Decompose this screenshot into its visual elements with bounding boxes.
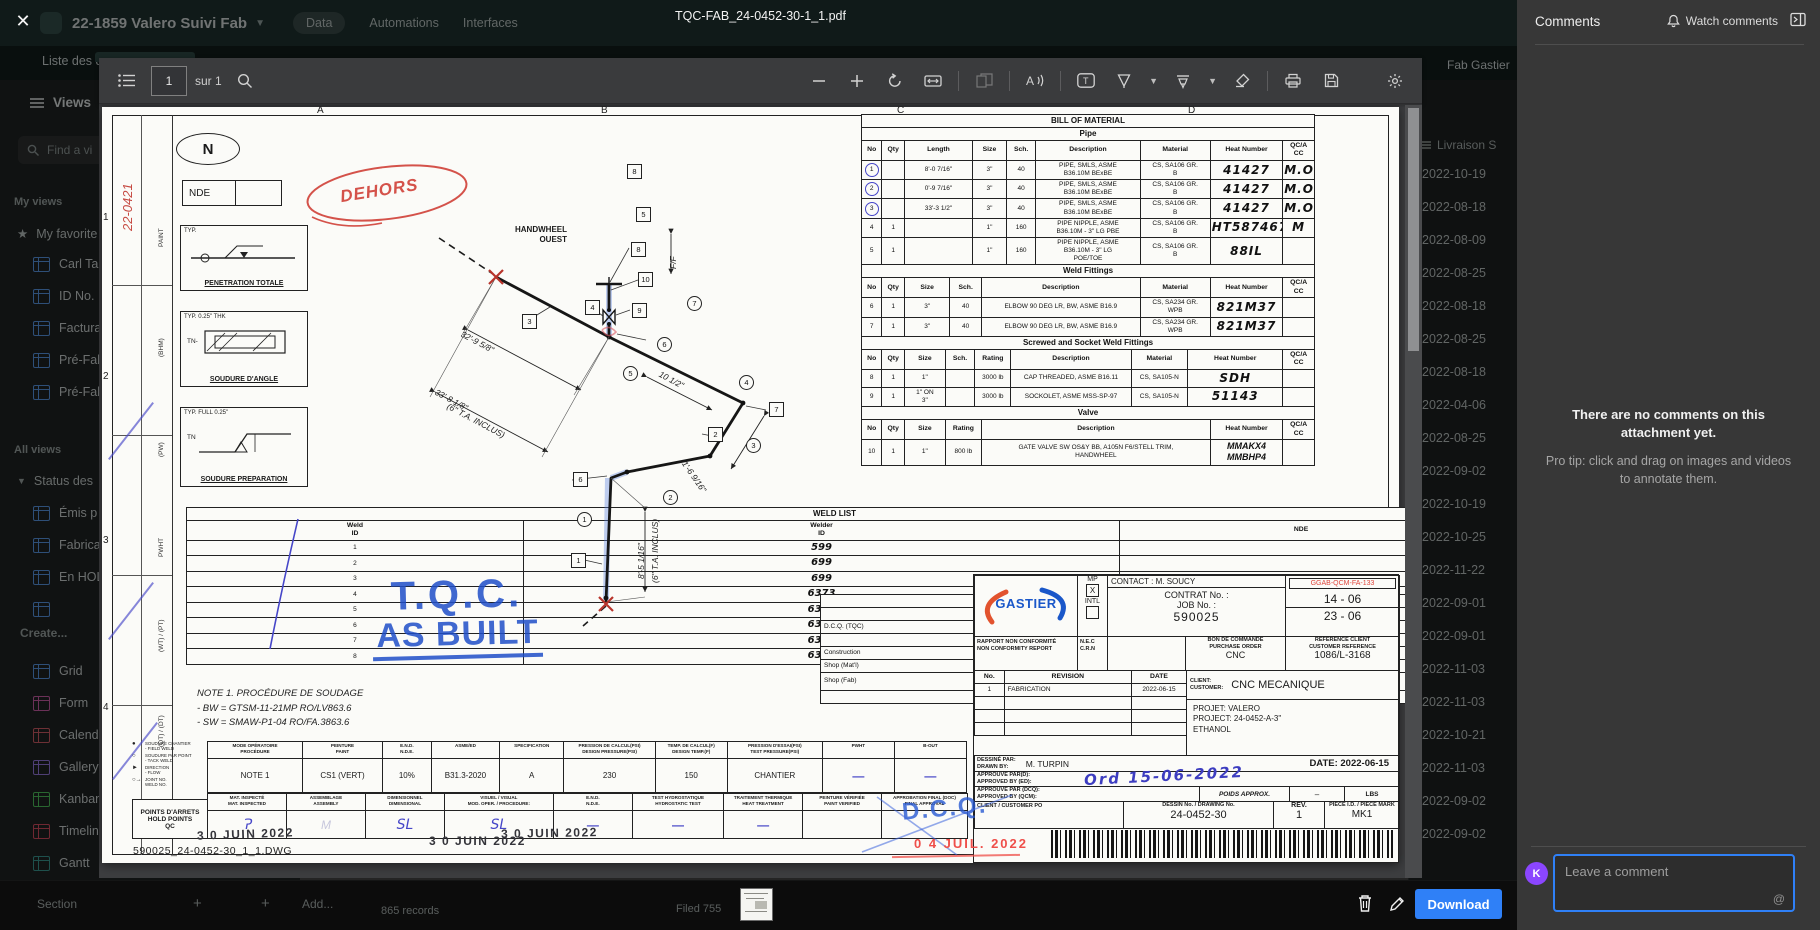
bell-icon: [1667, 14, 1680, 28]
date-cell[interactable]: 2022-04-06: [1409, 389, 1519, 422]
sidebar-view-item-partial[interactable]: [0, 593, 50, 625]
views-label: Views: [53, 95, 91, 110]
view-item-label: Fabrica: [59, 538, 101, 552]
star-icon: ★: [17, 226, 28, 241]
settings-gear-icon[interactable]: [1382, 68, 1408, 94]
screen: 22-1859 Valero Suivi Fab ▼ Data Automati…: [0, 0, 1820, 930]
grid-view-icon: [33, 289, 50, 304]
mp-checkbox: X: [1086, 584, 1099, 597]
grid-view-icon: [33, 321, 50, 336]
view-item-label: ID No.: [59, 289, 94, 303]
view-type-icon: [33, 696, 50, 711]
date-cell[interactable]: 2022-09-02: [1409, 455, 1519, 488]
read-aloud-icon[interactable]: A: [1022, 68, 1048, 94]
search-icon: [27, 144, 39, 156]
create-item-label: Gantt: [59, 856, 90, 870]
title-block: GASTIER MP X INTL CONTACT : M. SOUCY CON…: [973, 574, 1399, 863]
create-item-label: Kanban: [59, 792, 102, 806]
all-views-label: All views: [14, 444, 61, 456]
view-type-icon: [33, 728, 50, 743]
dimension-label: 10 1/2": [657, 369, 685, 390]
add-button[interactable]: Add...: [302, 897, 333, 911]
grid-view-icon: [33, 506, 50, 521]
legend-item: ►DIRECTION - FLOW: [132, 765, 208, 775]
date-cell[interactable]: 2022-10-19: [1409, 488, 1519, 521]
section-label[interactable]: Section: [37, 897, 77, 911]
legend-item: ●SOUDURE CHANTIER - FIELD WELD: [132, 741, 208, 751]
view-item-label: Pré-Fab: [59, 353, 104, 367]
draw-pen-icon[interactable]: [1111, 68, 1137, 94]
dimension-label: (6" T.A. INCLUS): [650, 519, 660, 583]
pdf-page[interactable]: ABCD 1234 22-0421 PAINT(BHM)(PW)PWHT(WT)…: [102, 107, 1399, 863]
intl-checkbox: [1086, 606, 1099, 619]
view-item-label: Émis p: [59, 506, 97, 520]
pdf-canvas: ABCD 1234 22-0421 PAINT(BHM)(PW)PWHT(WT)…: [99, 105, 1405, 878]
date-cell[interactable]: 2022-09-02: [1409, 818, 1519, 851]
date-cell[interactable]: 2022-11-03: [1409, 752, 1519, 785]
grid-view-icon: [33, 538, 50, 553]
date-cell[interactable]: 2022-08-18: [1409, 356, 1519, 389]
empty-state-tip: Pro tip: click and drag on images and vi…: [1539, 453, 1798, 488]
fit-width-icon[interactable]: [920, 68, 946, 94]
subnav-right-label: Fab Gastier: [1447, 58, 1510, 72]
symbol-legend: ●SOUDURE CHANTIER - FIELD WELD○SOUDURE P…: [132, 741, 208, 797]
date-cell[interactable]: 2022-10-25: [1409, 521, 1519, 554]
highlighter-options-chevron-icon[interactable]: ▼: [1208, 76, 1217, 86]
annotate-pencil-button[interactable]: [1384, 890, 1410, 916]
date-cell[interactable]: 2022-09-02: [1409, 785, 1519, 818]
find-view-placeholder: Find a vi: [47, 143, 92, 157]
hamburger-icon[interactable]: [30, 97, 44, 109]
eraser-icon[interactable]: [1229, 68, 1255, 94]
scrollbar-thumb[interactable]: [1408, 108, 1419, 351]
save-icon[interactable]: [1318, 68, 1344, 94]
pen-options-chevron-icon[interactable]: ▼: [1149, 76, 1158, 86]
grid-view-icon: [33, 257, 50, 272]
dwg-filename: 590025_24-0452-30_1_1.DWG: [133, 845, 292, 857]
livraison-header[interactable]: Livraison S: [1419, 138, 1496, 152]
grid-view-icon: [33, 353, 50, 368]
comment-input[interactable]: @: [1553, 854, 1795, 912]
qc-strip: ●SOUDURE CHANTIER - FIELD WELD○SOUDURE P…: [132, 741, 977, 839]
date-cell[interactable]: 2022-08-09: [1409, 224, 1519, 257]
zoom-in-icon[interactable]: [844, 68, 870, 94]
my-favorites-row[interactable]: ★ My favorite: [17, 226, 97, 241]
grid-view-icon: [33, 570, 50, 585]
viewer-scrollbar[interactable]: [1405, 105, 1422, 878]
create-item-label: Grid: [59, 664, 83, 678]
date-cell[interactable]: 2022-09-01: [1409, 587, 1519, 620]
gastier-logo: GASTIER: [975, 596, 1077, 611]
filed-count-left: Filed 755: [676, 903, 721, 915]
download-button[interactable]: Download: [1415, 889, 1502, 919]
create-item-label: Form: [59, 696, 88, 710]
page-number-input[interactable]: [151, 66, 187, 96]
livraison-column: Livraison S 2022-10-192022-08-182022-08-…: [1408, 80, 1519, 930]
comments-panel: Comments Watch comments There are no com…: [1517, 0, 1820, 930]
date-cell[interactable]: 2022-10-19: [1409, 158, 1519, 191]
dimension-label: 8'-5 1/16": [636, 543, 646, 579]
bill-of-material: BILL OF MATERIALPipeNoQtyLengthSizeSch.D…: [861, 115, 1315, 466]
rotate-icon[interactable]: [882, 68, 908, 94]
attachment-filename: TQC-FAB_24-0452-30-1_1.pdf: [99, 9, 1422, 23]
bom-valve-table: ValveNoQtySizeRatingDescriptionHeat Numb…: [861, 406, 1315, 465]
date-cell[interactable]: 2022-11-03: [1409, 686, 1519, 719]
view-type-icon: [33, 792, 50, 807]
date-cell[interactable]: 2022-08-25: [1409, 422, 1519, 455]
date-cell[interactable]: 2022-09-01: [1409, 620, 1519, 653]
dimension-label: (6" T.A. INCLUS): [445, 401, 506, 440]
date-cell[interactable]: 2022-10-21: [1409, 719, 1519, 752]
qc-row-1: MODE OPÉRATOIRE PROCÉDURENOTE 1PEINTURE …: [208, 741, 977, 793]
date-cell[interactable]: 2022-08-18: [1409, 191, 1519, 224]
mention-icon[interactable]: @: [1773, 892, 1785, 906]
date-cell[interactable]: 2022-08-18: [1409, 290, 1519, 323]
view-type-icon: [33, 760, 50, 775]
livraison-dates: 2022-10-192022-08-182022-08-092022-08-25…: [1409, 158, 1519, 851]
avatar: K: [1525, 862, 1548, 885]
view-type-icon: [33, 664, 50, 679]
bom-weld-fittings-table: Weld FittingsNoQtySizeSch.DescriptionMat…: [861, 264, 1315, 336]
grid-view-icon: [33, 385, 50, 400]
comment-textarea[interactable]: [1555, 856, 1793, 894]
barcode: [1051, 830, 1393, 858]
date-cell[interactable]: 2022-08-25: [1409, 323, 1519, 356]
qc-code: GGAB-QCM-FA-133: [1289, 578, 1396, 589]
views-header: Views: [30, 95, 91, 110]
create-item-label: Gallery: [59, 760, 99, 774]
highlighter-icon[interactable]: [1170, 68, 1196, 94]
dimension-label: 1'-6 9/16": [680, 459, 709, 494]
app-logo-icon: [40, 12, 62, 34]
bom-pipe-table: BILL OF MATERIALPipeNoQtyLengthSizeSch.D…: [861, 114, 1315, 265]
revision-table: No.REVISIONDATE1FABRICATION2022-06-15: [974, 670, 1187, 736]
my-favorites-label: My favorite: [36, 227, 97, 241]
search-icon[interactable]: [232, 68, 258, 94]
add-section-button[interactable]: +: [193, 895, 202, 912]
legend-item: ○SOUDURE PAR POINT - TACK WELD: [132, 753, 208, 763]
view-item-label: Factura: [59, 321, 101, 335]
group-label: Status des: [34, 474, 93, 488]
page-view-icon: [971, 68, 997, 94]
svg-text:A: A: [1026, 74, 1034, 88]
handwheel-label: HANDWHEEL OUEST: [487, 225, 567, 244]
pdf-viewer: sur 1 A T ▼ ▼: [99, 58, 1422, 878]
legend-item: ○→JOINT NO. WELD NO.: [132, 777, 208, 787]
chevron-down-icon: ▼: [17, 476, 26, 486]
view-item-label: Pré-Fab: [59, 385, 104, 399]
view-item-label: Carl Ta: [59, 257, 98, 271]
view-type-icon: [33, 824, 50, 839]
svg-text:T: T: [1083, 76, 1089, 86]
bom-screwed-table: Screwed and Socket Weld FittingsNoQtySiz…: [861, 336, 1315, 407]
comments-title: Comments: [1535, 14, 1600, 29]
dimension-label: F/F: [668, 256, 678, 269]
close-icon[interactable]: ✕: [12, 10, 34, 32]
record-count: 865 records: [381, 905, 439, 917]
collapse-panel-icon[interactable]: [1790, 12, 1806, 30]
delete-attachment-button[interactable]: [1352, 890, 1378, 916]
print-icon[interactable]: [1280, 68, 1306, 94]
date-cell[interactable]: 2022-11-22: [1409, 554, 1519, 587]
dimension-label: 32'-9 5/8": [459, 329, 495, 355]
comments-empty-state: There are no comments on this attachment…: [1539, 406, 1798, 488]
watch-comments-button[interactable]: Watch comments: [1667, 14, 1778, 28]
date-cell[interactable]: 2022-11-03: [1409, 653, 1519, 686]
pdf-toolbar: sur 1 A T ▼ ▼: [99, 58, 1422, 104]
date-cell[interactable]: 2022-08-25: [1409, 257, 1519, 290]
toc-icon[interactable]: [113, 68, 139, 94]
my-views-label: My views: [14, 196, 62, 208]
view-item-label: En HOL: [59, 570, 103, 584]
zoom-out-icon[interactable]: [806, 68, 832, 94]
date-stamp: 3 0 JUIN 2022: [501, 825, 598, 841]
create-label: Create...: [20, 626, 67, 640]
attachment-thumbnail[interactable]: [740, 888, 773, 921]
red-date-stamp: 0 4 JUIL. 2022: [914, 836, 1028, 851]
group-row[interactable]: ▼ Status des: [17, 474, 93, 488]
empty-state-title: There are no comments on this attachment…: [1539, 406, 1798, 441]
view-type-icon: [33, 856, 50, 871]
page-count-label: sur 1: [195, 74, 222, 88]
grid-view-icon: [33, 602, 50, 617]
add-record-button[interactable]: +: [261, 895, 270, 912]
add-text-icon[interactable]: T: [1073, 68, 1099, 94]
